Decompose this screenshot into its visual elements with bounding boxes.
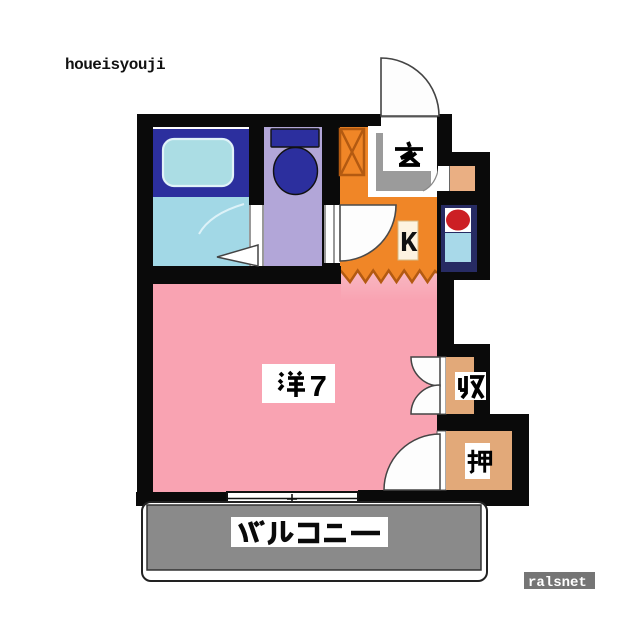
svg-text:K: K <box>400 227 418 260</box>
svg-text:7: 7 <box>309 371 328 406</box>
svg-text:houeisyouji: houeisyouji <box>65 56 165 74</box>
svg-text:ralsnet: ralsnet <box>528 575 587 591</box>
